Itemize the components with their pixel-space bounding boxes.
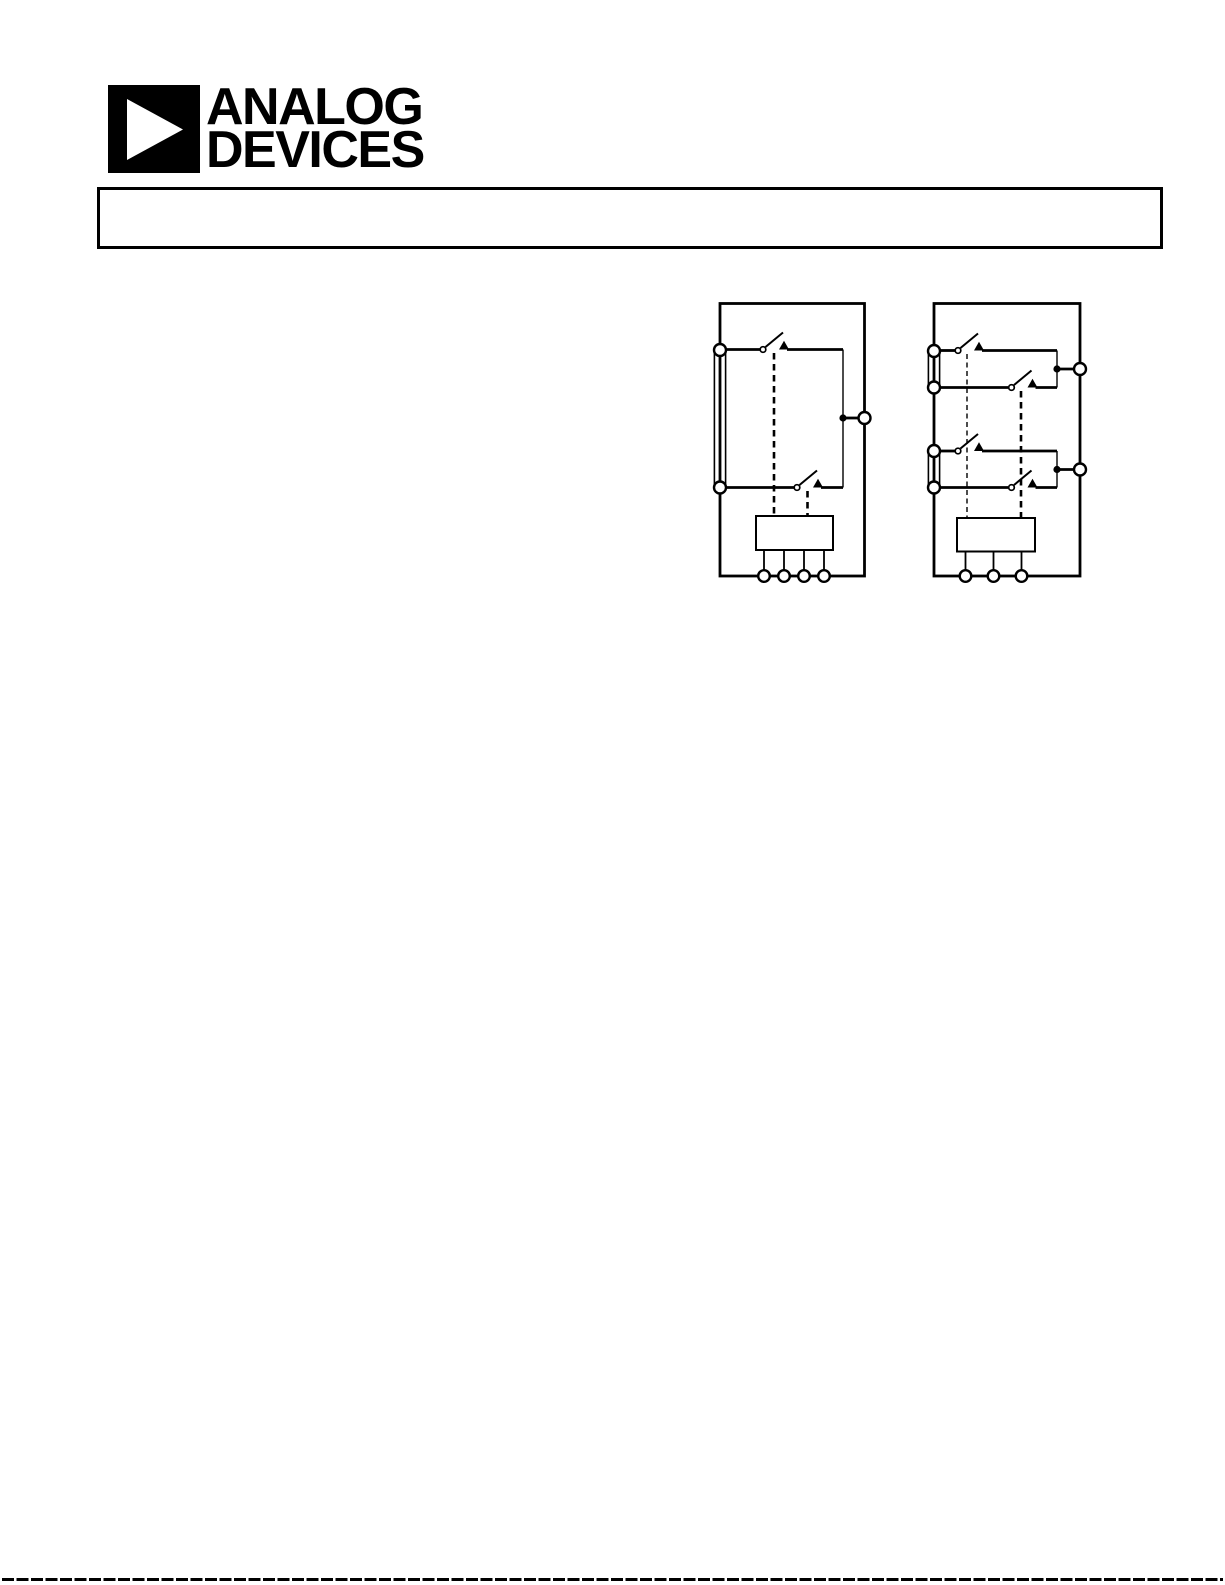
spst-switch-icon xyxy=(940,471,1057,491)
functional-block-diagrams xyxy=(690,285,1100,595)
spst-switch-icon xyxy=(940,334,1057,354)
terminal-circle xyxy=(859,412,871,424)
terminal-circle xyxy=(988,570,1000,582)
terminal-circle xyxy=(928,445,940,457)
terminal-circle xyxy=(714,482,726,494)
logo-wordmark: ANALOG DEVICES xyxy=(206,86,424,172)
control-logic-box xyxy=(957,518,1035,552)
terminal-circle xyxy=(1016,570,1028,582)
terminal-circle xyxy=(818,570,830,582)
terminal-circle xyxy=(778,570,790,582)
terminal-circle xyxy=(798,570,810,582)
control-logic-box xyxy=(756,516,833,550)
terminal-circle xyxy=(1074,464,1086,476)
analog-devices-triangle-icon xyxy=(108,85,200,173)
terminal-circle xyxy=(1074,363,1086,375)
title-box xyxy=(97,187,1163,249)
junction-dot xyxy=(1053,466,1060,473)
footer-divider xyxy=(2,1578,1223,1581)
block-diagram-dual-spdt xyxy=(928,304,1086,582)
spst-switch-icon xyxy=(940,434,1057,454)
spst-switch-icon xyxy=(726,471,843,491)
terminal-circle xyxy=(714,344,726,356)
terminal-circle xyxy=(928,345,940,357)
junction-dot xyxy=(839,414,846,421)
block-diagram-single-spdt xyxy=(714,304,871,582)
spst-switch-icon xyxy=(726,333,843,353)
spst-switch-icon xyxy=(940,371,1057,391)
terminal-circle xyxy=(928,382,940,394)
terminal-circle xyxy=(928,482,940,494)
terminal-circle xyxy=(758,570,770,582)
terminal-circle xyxy=(960,570,972,582)
junction-dot xyxy=(1053,365,1060,372)
datasheet-page: ANALOG DEVICES xyxy=(0,0,1225,1585)
logo-text-line2: DEVICES xyxy=(206,129,424,172)
